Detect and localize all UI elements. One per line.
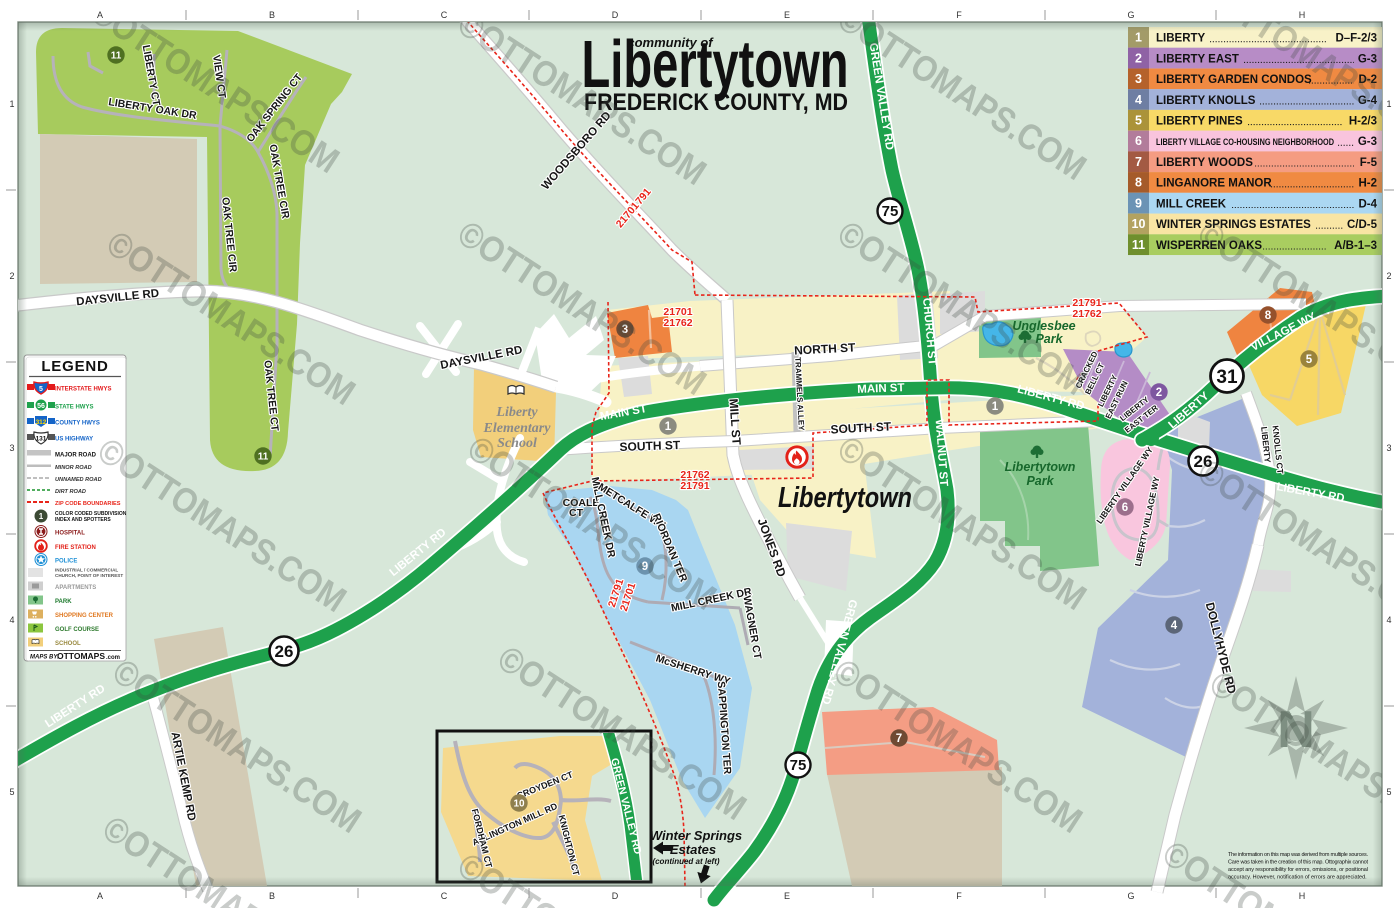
svg-text:131: 131 [36, 436, 47, 443]
svg-text:4: 4 [9, 615, 14, 625]
svg-text:1: 1 [665, 421, 672, 433]
svg-text:10: 10 [513, 799, 525, 810]
svg-text:10: 10 [1132, 217, 1146, 231]
svg-text:OTTOMAPS: OTTOMAPS [57, 651, 105, 661]
svg-text:SOUTH ST: SOUTH ST [619, 438, 681, 454]
svg-text:(continued at left): (continued at left) [652, 857, 719, 866]
svg-text:D–F-2/3: D–F-2/3 [1335, 33, 1377, 45]
svg-text:LIBERTY KNOLLS: LIBERTY KNOLLS [1156, 95, 1256, 107]
svg-text:2: 2 [1135, 51, 1142, 65]
svg-text:accept any responsibility for: accept any responsibility for errors, om… [1228, 867, 1368, 873]
svg-text:3: 3 [1386, 443, 1391, 453]
svg-text:75: 75 [790, 757, 807, 774]
svg-text:G: G [1127, 891, 1134, 901]
svg-text:6: 6 [1122, 502, 1128, 514]
svg-text:LIBERTY EAST: LIBERTY EAST [1156, 53, 1239, 65]
svg-text:8: 8 [1265, 310, 1272, 322]
svg-text:56: 56 [37, 403, 45, 410]
svg-text:11: 11 [258, 452, 269, 463]
svg-text:3: 3 [9, 443, 14, 453]
svg-text:2: 2 [9, 271, 14, 281]
svg-text:26: 26 [275, 642, 294, 661]
svg-text:MAJOR ROAD: MAJOR ROAD [55, 453, 97, 459]
svg-text:LINGANORE MANOR: LINGANORE MANOR [1156, 178, 1272, 190]
svg-text:5: 5 [1135, 114, 1142, 128]
svg-text:B: B [269, 891, 275, 901]
svg-text:4: 4 [1135, 93, 1142, 107]
svg-text:Liberty: Liberty [495, 405, 538, 420]
svg-text:MAPS BY:: MAPS BY: [30, 655, 59, 661]
svg-text:PARK: PARK [55, 599, 72, 605]
svg-text:A/B-1–3: A/B-1–3 [1334, 240, 1377, 252]
svg-text:LIBERTY WOODS: LIBERTY WOODS [1156, 157, 1253, 169]
svg-text:MINOR ROAD: MINOR ROAD [55, 465, 92, 471]
svg-text:INTERSTATE HWYS: INTERSTATE HWYS [55, 387, 111, 393]
svg-text:6: 6 [1135, 134, 1142, 148]
svg-text:5: 5 [1306, 354, 1313, 366]
svg-text:3: 3 [1135, 72, 1142, 86]
svg-text:LIBERTY VILLAGE CO-HOUSING NEI: LIBERTY VILLAGE CO-HOUSING NEIGHBORHOOD [1156, 137, 1334, 148]
svg-text:community of: community of [627, 35, 714, 50]
svg-text:Libertytown: Libertytown [1005, 460, 1076, 474]
svg-text:POLICE: POLICE [55, 559, 77, 565]
svg-text:Park: Park [1026, 474, 1054, 488]
svg-text:21791: 21791 [680, 480, 709, 492]
svg-text:5: 5 [1386, 787, 1391, 797]
svg-text:9: 9 [1135, 196, 1142, 210]
svg-text:4: 4 [1386, 615, 1391, 625]
svg-text:COUNTY HWYS: COUNTY HWYS [55, 421, 100, 427]
svg-text:INDUSTRIAL / COMMERCIAL: INDUSTRIAL / COMMERCIAL [55, 568, 118, 573]
svg-text:21762: 21762 [663, 317, 692, 329]
svg-text:A: A [97, 10, 103, 20]
svg-text:SHOPPING CENTER: SHOPPING CENTER [55, 613, 114, 619]
svg-text:75: 75 [882, 203, 899, 220]
svg-text:1: 1 [39, 512, 44, 521]
svg-text:H: H [1299, 10, 1306, 20]
svg-text:11: 11 [1132, 238, 1145, 252]
svg-text:US HIGHWAY: US HIGHWAY [55, 437, 93, 443]
svg-text:HOSPITAL: HOSPITAL [55, 531, 85, 537]
svg-text:FIRE STATION: FIRE STATION [55, 545, 96, 551]
svg-text:LIBERTY PINES: LIBERTY PINES [1156, 116, 1243, 128]
svg-text:A: A [97, 891, 103, 901]
svg-text:1: 1 [1135, 31, 1142, 45]
svg-text:CHURCH, POINT OF INTEREST: CHURCH, POINT OF INTEREST [55, 573, 123, 578]
svg-text:1: 1 [992, 401, 999, 413]
svg-text:1: 1 [1386, 99, 1391, 109]
svg-text:Estates: Estates [670, 842, 716, 857]
svg-text:F: F [956, 10, 962, 20]
svg-text:31: 31 [1216, 367, 1238, 388]
svg-text:LEGEND: LEGEND [41, 358, 108, 375]
svg-text:APARTMENTS: APARTMENTS [55, 585, 96, 591]
svg-text:5: 5 [9, 787, 14, 797]
svg-text:C: C [441, 10, 448, 20]
svg-text:.com: .com [106, 655, 120, 661]
svg-text:4: 4 [1171, 620, 1178, 632]
svg-text:SCHOOL: SCHOOL [55, 641, 81, 647]
svg-text:Winter Springs: Winter Springs [650, 828, 742, 843]
svg-text:2: 2 [1156, 387, 1162, 399]
svg-text:C: C [441, 891, 448, 901]
svg-text:1: 1 [9, 99, 14, 109]
svg-text:UNNAMED ROAD: UNNAMED ROAD [55, 477, 102, 483]
svg-text:GOLF COURSE: GOLF COURSE [55, 627, 99, 633]
svg-text:MILL CREEK: MILL CREEK [1156, 198, 1227, 210]
svg-text:The information on this map wa: The information on this map was derived … [1228, 852, 1368, 858]
svg-text:8: 8 [1135, 176, 1142, 190]
svg-text:MAIN ST: MAIN ST [857, 382, 905, 396]
svg-text:ZIP CODE BOUNDARIES: ZIP CODE BOUNDARIES [55, 501, 121, 507]
svg-text:21762: 21762 [1072, 308, 1101, 320]
svg-text:LIBERTY GARDEN CONDOS: LIBERTY GARDEN CONDOS [1156, 74, 1312, 86]
svg-text:B: B [269, 10, 275, 20]
svg-text:2: 2 [1386, 271, 1391, 281]
svg-text:E: E [784, 891, 790, 901]
svg-text:5: 5 [39, 386, 43, 393]
svg-text:Care was taken in the creation: Care was taken in the creation of this m… [1228, 860, 1368, 866]
svg-text:LIBERTY: LIBERTY [1156, 33, 1206, 45]
svg-text:H: H [1299, 891, 1306, 901]
svg-text:D: D [612, 10, 619, 20]
svg-text:STATE HWYS: STATE HWYS [55, 405, 93, 411]
svg-text:D: D [612, 891, 619, 901]
svg-text:F: F [956, 891, 962, 901]
svg-text:INDEX AND SPOTTERS: INDEX AND SPOTTERS [55, 517, 111, 523]
svg-text:G: G [1127, 10, 1134, 20]
svg-text:312: 312 [36, 419, 47, 426]
svg-text:E: E [784, 10, 790, 20]
svg-text:7: 7 [1135, 155, 1142, 169]
svg-text:11: 11 [111, 51, 122, 62]
svg-text:DIRT ROAD: DIRT ROAD [55, 489, 86, 495]
svg-text:7: 7 [896, 733, 902, 745]
